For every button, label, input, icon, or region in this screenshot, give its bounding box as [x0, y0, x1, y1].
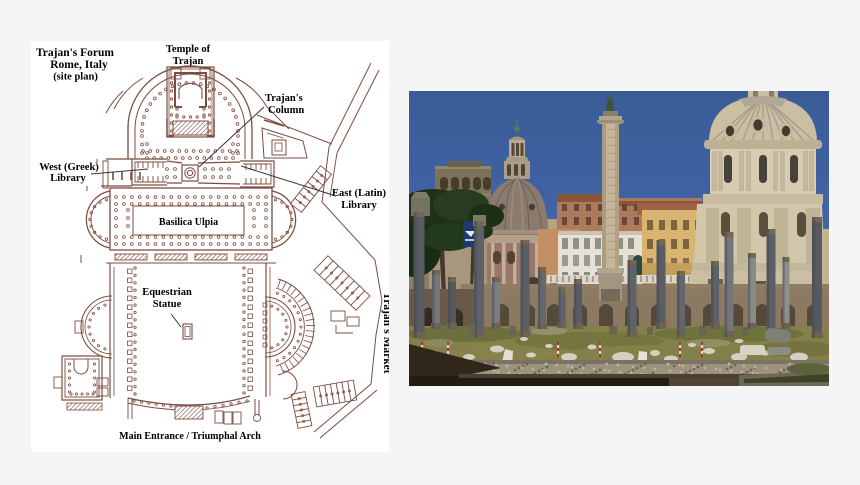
svg-text:Basilica Ulpia: Basilica Ulpia [159, 217, 218, 228]
svg-text:Trajan's: Trajan's [265, 93, 303, 104]
svg-text:Column: Column [268, 105, 304, 116]
svg-text:Temple of: Temple of [166, 44, 211, 55]
svg-text:West (Greek): West (Greek) [39, 162, 99, 173]
svg-text:Trajan's Forum: Trajan's Forum [36, 47, 114, 59]
svg-text:Main Entrance / Triumphal Arch: Main Entrance / Triumphal Arch [119, 431, 261, 442]
svg-text:(site plan): (site plan) [53, 72, 98, 83]
svg-text:Statue: Statue [153, 299, 182, 310]
svg-text:Trajan: Trajan [173, 56, 204, 67]
svg-text:Library: Library [50, 173, 86, 184]
svg-text:Trajan's Market: Trajan's Market [381, 292, 389, 373]
svg-text:Equestrian: Equestrian [142, 287, 192, 298]
svg-text:Library: Library [341, 200, 377, 211]
svg-text:Rome, Italy: Rome, Italy [50, 59, 108, 71]
svg-text:East (Latin): East (Latin) [332, 188, 386, 199]
